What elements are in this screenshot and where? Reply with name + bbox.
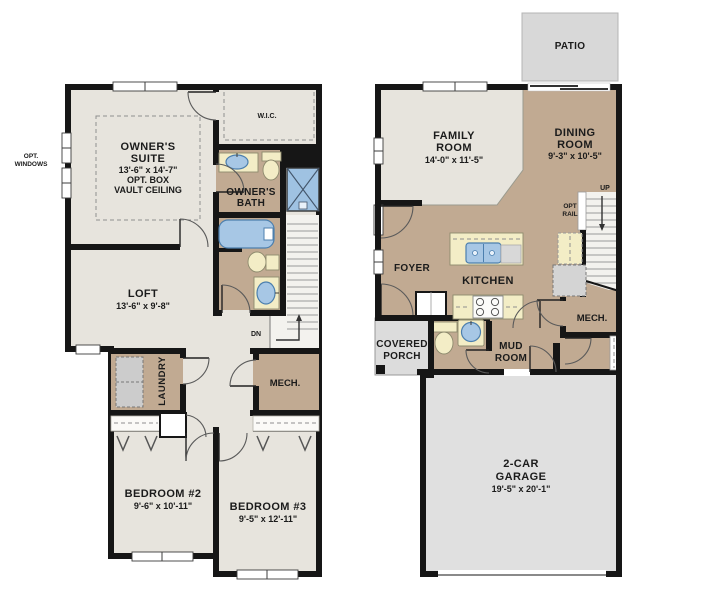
patio-sliding-door [528, 83, 610, 91]
owners-suite-opt-1: OPT. BOX [127, 175, 169, 185]
hall-bath-toilet [248, 252, 279, 272]
garage-label-1: 2-CAR [503, 458, 539, 470]
dn-label: DN [251, 331, 261, 338]
wic-label: W.I.C. [257, 113, 276, 120]
dining-room-label-2: ROOM [557, 139, 593, 151]
owners-bath-label-1: OWNER'S [226, 187, 276, 198]
dishwasher [501, 245, 521, 263]
laundry-label: LAUNDRY [157, 356, 168, 406]
washer-dryer [116, 357, 143, 407]
refrigerator [553, 265, 586, 296]
covered-porch-label-1: COVERED [376, 339, 428, 350]
hall-bath-vanity [254, 277, 279, 309]
family-room-dims: 14'-0" x 11'-5" [425, 155, 483, 165]
covered-porch-label-2: PORCH [383, 351, 421, 362]
stairs-down-floor [283, 215, 319, 348]
foyer-label: FOYER [394, 263, 430, 274]
bedroom3-label: BEDROOM #3 [230, 501, 307, 513]
opt-rail-label-1: OPT [563, 203, 576, 210]
owners-suite-label-2: SUITE [131, 153, 165, 165]
up-label: UP [600, 185, 610, 192]
floorplan-canvas: OWNER'S SUITE 13'-6" x 14'-7" OPT. BOX V… [0, 0, 707, 606]
owners-suite-dims: 13'-6" x 14'-7" [119, 165, 178, 175]
garage-dims: 19'-5" x 20'-1" [492, 484, 551, 494]
left-plan: OWNER'S SUITE 13'-6" x 14'-7" OPT. BOX V… [15, 82, 322, 579]
foyer-closet [416, 292, 446, 316]
loft-dims: 13'-6" x 9'-8" [116, 301, 170, 311]
floorplan-svg: OWNER'S SUITE 13'-6" x 14'-7" OPT. BOX V… [0, 0, 707, 606]
mech-right-label: MECH. [577, 313, 608, 324]
opt-rail-label-2: RAIL [562, 211, 577, 218]
family-room-label-1: FAMILY [433, 130, 475, 142]
opt-windows-label-2: WINDOWS [15, 161, 49, 168]
kitchen-counter-stove [453, 295, 523, 319]
opt-windows-label-1: OPT. [24, 153, 39, 160]
owners-suite-opt-2: VAULT CEILING [114, 185, 182, 195]
right-plan: PATIO FAMILY ROOM 14'-0" x 11'-5" DINING… [374, 13, 622, 578]
patio-label: PATIO [555, 41, 586, 52]
family-room-label-2: ROOM [436, 142, 472, 154]
bedroom2-dims: 9'-6" x 10'-11" [134, 501, 192, 511]
loft-label: LOFT [128, 288, 158, 300]
owners-suite-label-1: OWNER'S [121, 141, 176, 153]
garage-label-2: GARAGE [496, 471, 547, 483]
dining-room-dims: 9'-3" x 10'-5" [548, 151, 602, 161]
bedroom2-label: BEDROOM #2 [125, 488, 202, 500]
pantry [558, 233, 582, 264]
powder-sink [458, 320, 484, 346]
stairs-landing [270, 316, 283, 348]
dining-room-label-1: DINING [555, 127, 596, 139]
mud-room-label-1: MUD [499, 341, 523, 352]
garage-door [438, 570, 606, 578]
mech-left-label: MECH. [270, 378, 301, 389]
owners-bath-vanity [219, 153, 258, 172]
kitchen-label: KITCHEN [462, 275, 514, 287]
bathtub [219, 220, 274, 248]
mud-room-label-2: ROOM [495, 353, 527, 364]
shower [287, 168, 319, 211]
kitchen-island [450, 233, 523, 265]
owners-bath-label-2: BATH [237, 198, 265, 209]
bedroom3-dims: 9'-5" x 12'-11" [239, 514, 297, 524]
